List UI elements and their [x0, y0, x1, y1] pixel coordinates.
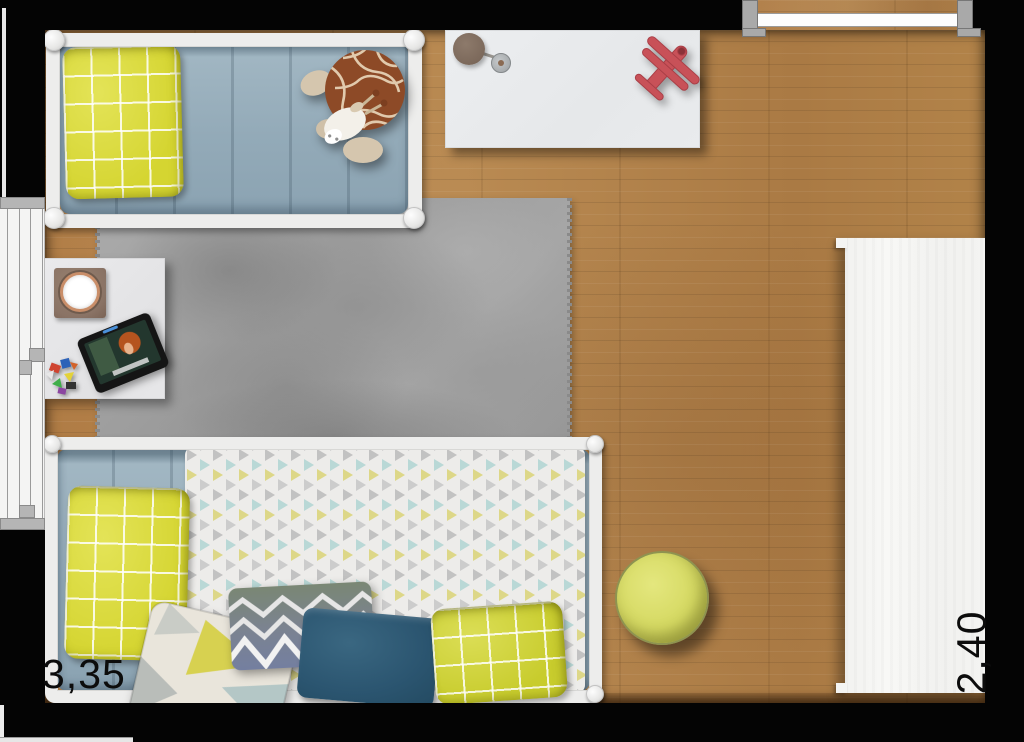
toddler-bed[interactable]: [46, 30, 422, 228]
desk[interactable]: [445, 30, 700, 148]
wall-top-left: [0, 0, 745, 30]
door-jamb-tab-right: [957, 28, 981, 37]
toy-blocks[interactable]: [44, 354, 84, 398]
window[interactable]: [0, 197, 45, 530]
bed2-post: [43, 435, 61, 453]
wall-bottom: [0, 703, 1024, 742]
dimension-label-depth: 2,40: [952, 591, 993, 715]
wardrobe-tab-top: [836, 238, 847, 248]
door-jamb-tab-left: [742, 28, 766, 37]
desk-lamp-base: [491, 53, 511, 73]
nightstand[interactable]: [42, 258, 165, 399]
window-cap-top: [0, 197, 45, 209]
giraffe-plush-toy[interactable]: [298, 36, 420, 166]
dimension-label-width: 3,35: [42, 654, 126, 695]
daybed[interactable]: [45, 437, 602, 703]
pouf[interactable]: [615, 551, 709, 645]
door[interactable]: [757, 13, 962, 27]
bed2-post: [586, 685, 604, 703]
window-latch: [19, 505, 35, 518]
navy-pillow: [296, 607, 440, 709]
bed2-post: [586, 435, 604, 453]
floorplan-canvas: 3,35 2,40: [0, 0, 1024, 742]
door-jamb-left: [742, 0, 758, 30]
wardrobe-tab-bottom: [836, 683, 847, 693]
bed1-post: [403, 207, 425, 229]
window-mullion: [7, 209, 8, 518]
yellow-grid-pillow: [430, 601, 568, 706]
window-mullion: [42, 209, 43, 518]
drum-toy[interactable]: [54, 268, 106, 318]
exterior-wall-line: [2, 8, 6, 197]
toy-airplane[interactable]: [623, 34, 701, 112]
tablet[interactable]: [76, 312, 170, 395]
door-jamb-right: [957, 0, 973, 30]
bed1-post: [43, 29, 65, 51]
rug[interactable]: [97, 198, 570, 440]
drum-skin: [60, 272, 100, 312]
desk-lamp-shade-icon[interactable]: [453, 33, 485, 65]
window-latch: [19, 360, 32, 375]
rug-fringe-right: [567, 198, 572, 440]
exterior-corner-strip: [0, 737, 133, 742]
bed1-post: [43, 207, 65, 229]
window-cap-bottom: [0, 518, 45, 530]
